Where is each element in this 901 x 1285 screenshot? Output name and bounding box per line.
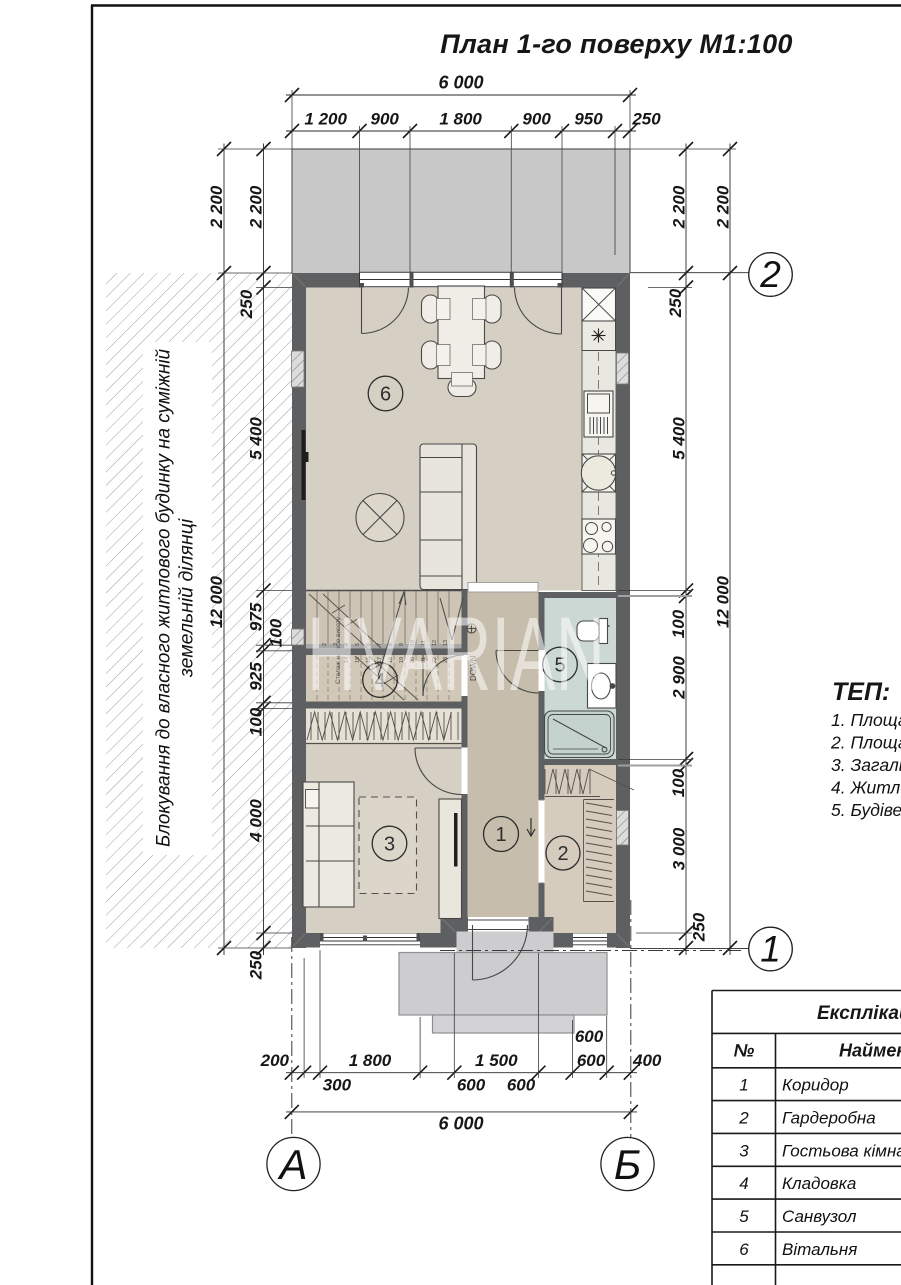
svg-text:2 200: 2 200 [207, 185, 226, 229]
svg-text:5. Будівельний об'єм - 174 м3: 5. Будівельний об'єм - 174 м3 [831, 800, 901, 820]
svg-text:Гардеробна: Гардеробна [782, 1108, 876, 1127]
svg-text:250: 250 [237, 289, 256, 319]
svg-text:6: 6 [739, 1240, 749, 1259]
svg-text:HVARIAN: HVARIAN [307, 596, 605, 713]
svg-text:1: 1 [760, 929, 781, 970]
svg-text:4 000: 4 000 [247, 799, 266, 843]
svg-text:2 200: 2 200 [714, 185, 733, 229]
svg-text:250: 250 [666, 288, 685, 318]
svg-text:5 400: 5 400 [670, 417, 689, 460]
svg-text:2. Площа тераси - 13,3 м2: 2. Площа тераси - 13,3 м2 [830, 732, 901, 752]
svg-text:1 800: 1 800 [439, 110, 482, 129]
svg-text:1: 1 [739, 1076, 748, 1095]
svg-text:ТЕП:: ТЕП: [832, 678, 890, 706]
svg-text:100: 100 [267, 618, 286, 647]
svg-text:250: 250 [690, 912, 709, 942]
svg-text:Вітальня: Вітальня [782, 1240, 857, 1259]
svg-text:А: А [276, 1141, 307, 1188]
svg-text:12 000: 12 000 [714, 575, 733, 628]
svg-text:6: 6 [380, 384, 391, 406]
svg-text:5: 5 [739, 1207, 749, 1226]
svg-text:600: 600 [575, 1027, 604, 1046]
svg-text:Б: Б [614, 1141, 641, 1188]
svg-text:2: 2 [738, 1108, 749, 1127]
svg-text:600: 600 [457, 1076, 486, 1095]
svg-text:2 200: 2 200 [670, 185, 689, 229]
svg-text:2: 2 [557, 843, 568, 865]
svg-text:4: 4 [739, 1174, 748, 1193]
svg-text:925: 925 [247, 662, 266, 691]
svg-text:600: 600 [507, 1076, 536, 1095]
svg-text:600: 600 [577, 1051, 606, 1070]
svg-text:1 200: 1 200 [304, 110, 347, 129]
svg-text:Експлікація приміщень: Експлікація приміщень [817, 1003, 901, 1024]
svg-text:2: 2 [759, 254, 781, 295]
svg-text:6 000: 6 000 [438, 73, 483, 93]
svg-text:4. Житлова площа - 16,9 м2: 4. Житлова площа - 16,9 м2 [831, 778, 901, 798]
svg-text:6 000: 6 000 [438, 1114, 483, 1134]
svg-text:Гостьова кімната: Гостьова кімната [782, 1141, 901, 1160]
svg-text:земельній ділянці: земельній ділянці [176, 518, 198, 678]
svg-text:1 800: 1 800 [349, 1051, 392, 1070]
svg-text:3: 3 [384, 834, 395, 856]
svg-text:100: 100 [669, 768, 688, 797]
svg-text:3 000: 3 000 [670, 827, 689, 870]
svg-text:975: 975 [247, 602, 266, 631]
svg-text:Коридор: Коридор [782, 1076, 849, 1095]
svg-text:№: № [734, 1041, 755, 1061]
svg-text:400: 400 [632, 1051, 662, 1070]
svg-text:Блокування до власного житлово: Блокування до власного житлового будинку… [153, 349, 175, 847]
svg-text:1. Площа забудови - 45,4 м2: 1. Площа забудови - 45,4 м2 [831, 710, 901, 730]
svg-text:300: 300 [323, 1076, 352, 1095]
svg-text:250: 250 [631, 110, 661, 129]
svg-text:3: 3 [739, 1141, 749, 1160]
svg-text:100: 100 [247, 707, 266, 736]
svg-text:950: 950 [574, 110, 603, 129]
svg-text:5 400: 5 400 [247, 417, 266, 460]
svg-text:200: 200 [260, 1051, 290, 1070]
svg-text:100: 100 [669, 609, 688, 638]
svg-text:900: 900 [371, 110, 400, 129]
svg-text:Санвузол: Санвузол [782, 1207, 857, 1226]
svg-text:Найменування: Найменування [839, 1041, 901, 1061]
svg-text:900: 900 [522, 110, 551, 129]
svg-text:Кладовка: Кладовка [782, 1174, 856, 1193]
svg-text:2 900: 2 900 [670, 656, 689, 700]
svg-text:1 500: 1 500 [475, 1051, 518, 1070]
svg-text:3. Загальна площа - 51,8 м2: 3. Загальна площа - 51,8 м2 [831, 755, 901, 775]
svg-text:12 000: 12 000 [207, 575, 226, 628]
svg-text:2 200: 2 200 [247, 185, 266, 229]
svg-text:План 1-го поверху М1:100: План 1-го поверху М1:100 [440, 29, 793, 59]
svg-text:250: 250 [247, 950, 266, 980]
svg-text:1: 1 [495, 824, 506, 846]
